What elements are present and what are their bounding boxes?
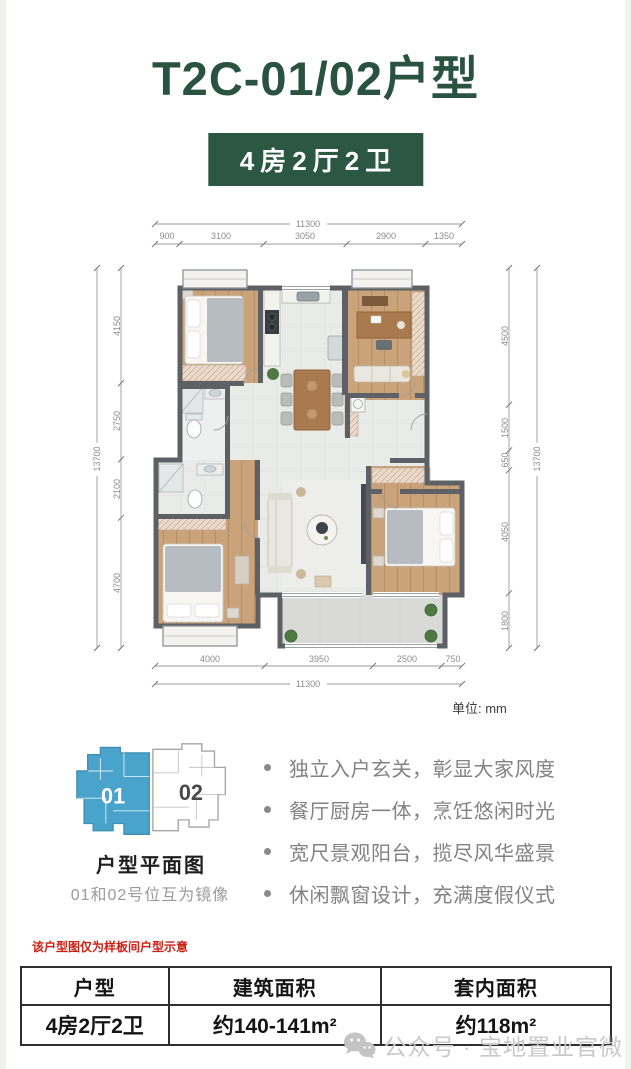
plant [425,630,437,642]
dim-top-seg: 1350 [434,231,454,241]
dim-bottom-seg: 4000 [200,654,220,664]
dim-left-total: 13700 [92,446,102,471]
plant [425,604,437,616]
dim-left-seg: 2750 [112,411,122,431]
dim-right-seg: 650 [500,452,510,467]
feature-text: 餐厅厨房一体，烹饪悠闲时光 [289,795,556,824]
desk-chair [376,340,392,350]
plant [267,368,279,380]
floorplan: 11300 900 3100 3050 2900 1350 4000 3950 … [85,208,565,708]
sofa [268,498,292,568]
page-edge-tint [0,0,6,1069]
bullet-dot [264,806,271,813]
dim-right-seg: 4500 [500,326,510,346]
locator-caption: 户型平面图 [62,849,240,878]
balcony-floor [280,595,445,646]
feature-text: 独立入户玄关，彰显大家风度 [289,753,556,782]
feature-text: 休闲飘窗设计，充满度假仪式 [289,879,556,908]
dim-bottom-total: 11300 [296,679,320,689]
dim-bottom-seg: 3950 [309,654,329,664]
dim-left-seg: 4150 [112,316,122,336]
dim-bottom-seg: 2500 [397,654,417,664]
dim-left-seg: 4700 [112,573,122,593]
bullet-dot [264,764,271,771]
locator-diagram: 01 02 [66,738,238,842]
table-header-net-area: 套内面积 [381,967,611,1005]
dim-right-seg: 4050 [500,522,510,542]
shelf [362,296,388,306]
study-sofa [354,366,410,382]
disclaimer-text: 该户型图仅为样板间户型示意 [32,938,188,955]
pouf [296,487,306,497]
page-title: T2C-01/02户型 [0,40,631,109]
cell-unit-type: 4房2厅2卫 [21,1005,169,1045]
fridge [328,336,343,360]
feature-item: 独立入户玄关，彰显大家风度 [264,746,594,788]
feature-item: 休闲飘窗设计，充满度假仪式 [264,872,594,914]
feature-text: 宽尺景观阳台，揽尽风华盛景 [289,837,556,866]
dim-top-seg: 3100 [211,231,231,241]
dim-right-seg: 1500 [500,418,510,438]
dim-top-total: 11300 [296,219,320,229]
watermark: 公众号 · 宝地置业官微 [342,1028,623,1062]
locator-note: 01和02号位互为镜像 [25,881,275,905]
table-header-row: 户型 建筑面积 套内面积 [21,967,611,1005]
feature-item: 餐厅厨房一体，烹饪悠闲时光 [264,788,594,830]
unit-01-label: 01 [101,784,125,809]
toilet [188,490,202,508]
dim-top-seg: 900 [159,231,174,241]
dim-left-seg: 2100 [112,479,122,499]
sink [297,292,319,301]
dim-top-seg: 3050 [295,231,315,241]
floorplan-drawing: 11300 900 3100 3050 2900 1350 4000 3950 … [85,208,565,708]
unit-note: 单位: mm [452,698,507,717]
table-header-gross-area: 建筑面积 [169,967,381,1005]
dim-right-seg: 1800 [500,611,510,631]
page-edge-tint [625,0,631,1069]
dining-table [294,370,330,430]
dim-top-seg: 2900 [376,231,396,241]
unit-type-badge: 4房2厅2卫 [208,133,423,186]
bullet-dot [264,890,271,897]
toilet [187,420,201,438]
feature-list: 独立入户玄关，彰显大家风度 餐厅厨房一体，烹饪悠闲时光 宽尺景观阳台，揽尽风华盛… [264,746,594,914]
feature-item: 宽尺景观阳台，揽尽风华盛景 [264,830,594,872]
plant [285,630,297,642]
dim-right-total: 13700 [532,446,542,471]
bullet-dot [264,848,271,855]
table-header-unit-type: 户型 [21,967,169,1005]
wechat-icon [342,1031,376,1059]
pouf [296,569,306,579]
watermark-text: 公众号 · 宝地置业官微 [384,1028,623,1062]
unit-02-label: 02 [179,780,203,805]
dim-bottom-seg: 750 [445,654,460,664]
